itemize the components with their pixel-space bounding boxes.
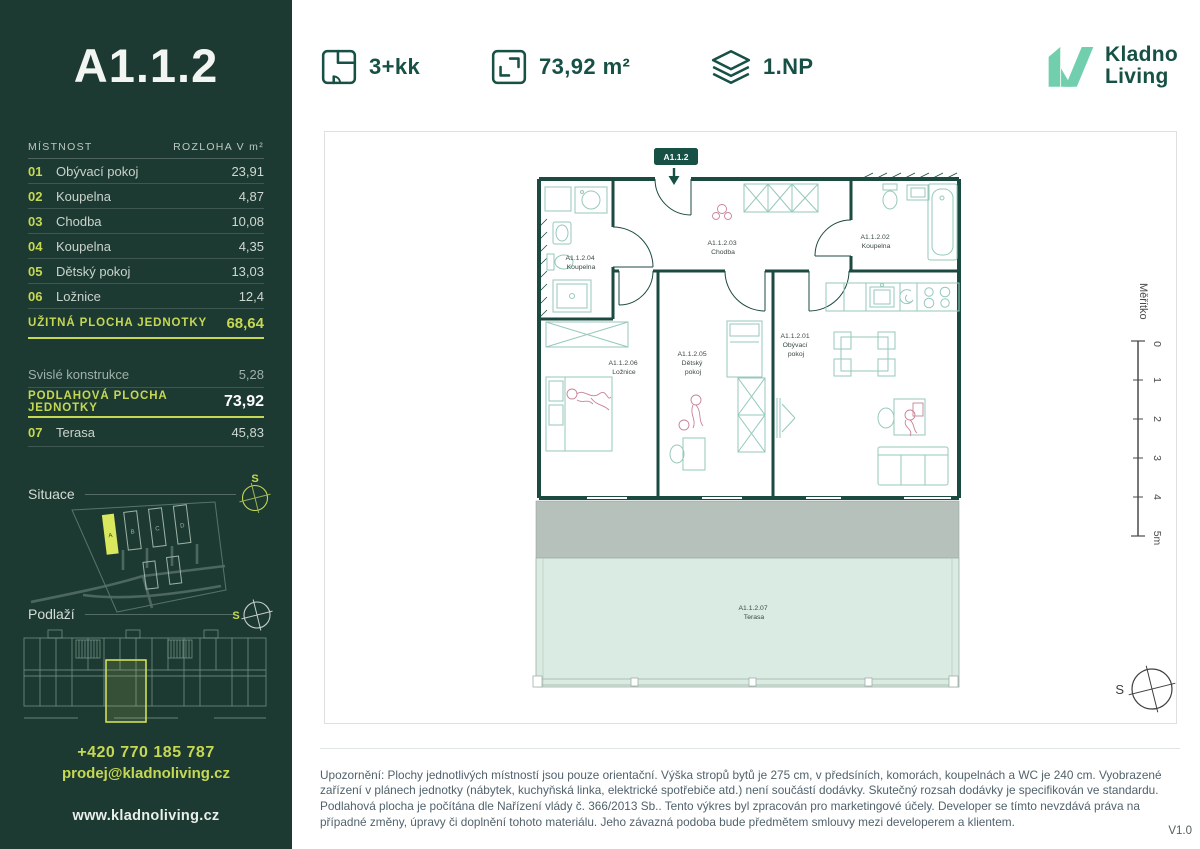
usable-area-row: UŽITNÁ PLOCHA JEDNOTKY 68,64 [28,309,264,339]
disposition-spec: 3+kk [320,48,420,86]
room-name: Dětský pokoj [56,264,231,279]
room-area: 12,4 [239,289,264,304]
table-row: 05 Dětský pokoj 13,03 [28,259,264,284]
version-label: V1.0 [1168,825,1192,837]
room-number: 01 [28,164,56,179]
room-label-loznice: A1.1.2.06 Ložnice [609,360,640,376]
outer-walls [539,179,959,498]
sidebar: A1.1.2 MÍSTNOST ROZLOHA V m² 01 Obývací … [0,0,292,849]
room-area: 4,35 [239,239,264,254]
contact-email-link[interactable]: prodej@kladnoliving.cz [0,765,292,782]
footer-divider [320,748,1180,749]
room-label-detsky-pokoj: A1.1.2.05 Dětský pokoj [678,351,709,376]
contact-block: +420 770 185 787 prodej@kladnoliving.cz … [0,744,292,824]
header-specs: 3+kk 73,92 m² 1.NP [292,0,1200,130]
table-header: MÍSTNOST ROZLOHA V m² [28,133,264,159]
floor-area-value: 73,92 [224,393,264,411]
disclaimer-text: Upozornění: Plochy jednotlivých místnost… [320,768,1168,831]
room-number: 07 [28,425,56,440]
room-number: 04 [28,239,56,254]
room-name: Terasa [56,425,231,440]
room-area: 45,83 [231,425,264,440]
col-area-header: ROZLOHA V m² [173,141,264,153]
room-label-koupelna-04: A1.1.2.04 Koupelna [566,255,597,271]
floor-key-plan [18,626,274,734]
usable-area-label: UŽITNÁ PLOCHA JEDNOTKY [28,317,226,329]
terrace-row: 07 Terasa 45,83 [28,418,264,447]
room-name: Obývací pokoj [56,164,231,179]
floor-area-row: PODLAHOVÁ PLOCHA JEDNOTKY 73,92 [28,388,264,418]
col-room-header: MÍSTNOST [28,141,93,153]
svg-text:4: 4 [1151,494,1163,500]
podlazi-section-label: Podlaží [28,606,236,622]
table-row: 01 Obývací pokoj 23,91 [28,159,264,184]
layers-icon [710,48,752,86]
area-value: 73,92 m² [539,54,630,80]
construction-row: Svislé konstrukce 5,28 [28,361,264,388]
svg-text:0: 0 [1151,341,1163,347]
room-name: Chodba [56,214,231,229]
terrace [533,501,959,687]
svg-text:B: B [130,529,135,535]
room-label-koupelna-02: A1.1.2.02 Koupelna [861,234,892,250]
unit-highlight [106,660,146,722]
table-row: 04 Koupelna 4,35 [28,234,264,259]
room-table: MÍSTNOST ROZLOHA V m² 01 Obývací pokoj 2… [28,133,264,447]
plan-compass-icon: S [1115,660,1176,718]
contact-website-link[interactable]: www.kladnoliving.cz [0,808,292,824]
area-spec: 73,92 m² [490,48,630,86]
usable-area-value: 68,64 [226,315,264,332]
room-label-obyvaci-pokoj: A1.1.2.01 Obývací pokoj [781,333,812,358]
svg-text:S: S [1115,682,1124,697]
room-area: 4,87 [239,189,264,204]
room-name: Koupelna [56,189,239,204]
svg-text:A: A [108,533,113,539]
contact-phone: +420 770 185 787 [0,744,292,762]
unit-sheet-page: A1.1.2 MÍSTNOST ROZLOHA V m² 01 Obývací … [0,0,1200,849]
room-name: Ložnice [56,289,239,304]
floor-spec: 1.NP [710,48,814,86]
svg-text:S: S [232,610,239,622]
room-area: 13,03 [231,264,264,279]
disposition-value: 3+kk [369,54,420,80]
unit-title: A1.1.2 [0,38,292,93]
scale-ruler: Měřítko 0 1 2 3 4 5m [1131,283,1163,546]
floor-value: 1.NP [763,54,814,80]
room-number: 02 [28,189,56,204]
entry-arrow-icon [669,168,680,185]
construction-label: Svislé konstrukce [28,367,239,382]
kladno-living-logo-icon [1047,44,1095,88]
svg-text:1: 1 [1151,377,1163,383]
room-number: 03 [28,214,56,229]
svg-text:5m: 5m [1151,531,1163,546]
area-icon [490,48,528,86]
scale-label: Měřítko [1137,283,1149,320]
room-number: 06 [28,289,56,304]
floor-area-label: PODLAHOVÁ PLOCHA JEDNOTKY [28,390,224,414]
svg-text:D: D [180,523,186,530]
svg-text:2: 2 [1151,416,1163,422]
table-row: 02 Koupelna 4,87 [28,184,264,209]
svg-text:A1.1.2: A1.1.2 [663,152,688,162]
logo-text: Kladno Living [1105,44,1178,88]
floor-plan-drawing: A1.1.2 [325,132,1176,723]
interior-walls [539,179,959,498]
table-row: 03 Chodba 10,08 [28,209,264,234]
room-number: 05 [28,264,56,279]
furniture [545,184,959,485]
brand-logo: Kladno Living [1047,44,1178,88]
floorplan-icon [320,48,358,86]
room-area: 10,08 [231,214,264,229]
svg-text:C: C [155,526,161,533]
construction-value: 5,28 [239,367,264,382]
floor-plan-panel: A1.1.2 [324,131,1177,724]
room-name: Koupelna [56,239,239,254]
site-plan-map: A B C D [25,498,245,616]
svg-text:S: S [251,473,258,485]
room-label-chodba: A1.1.2.03 Chodba [708,240,739,256]
table-row: 06 Ložnice 12,4 [28,284,264,309]
svg-text:3: 3 [1151,455,1163,461]
room-area: 23,91 [231,164,264,179]
